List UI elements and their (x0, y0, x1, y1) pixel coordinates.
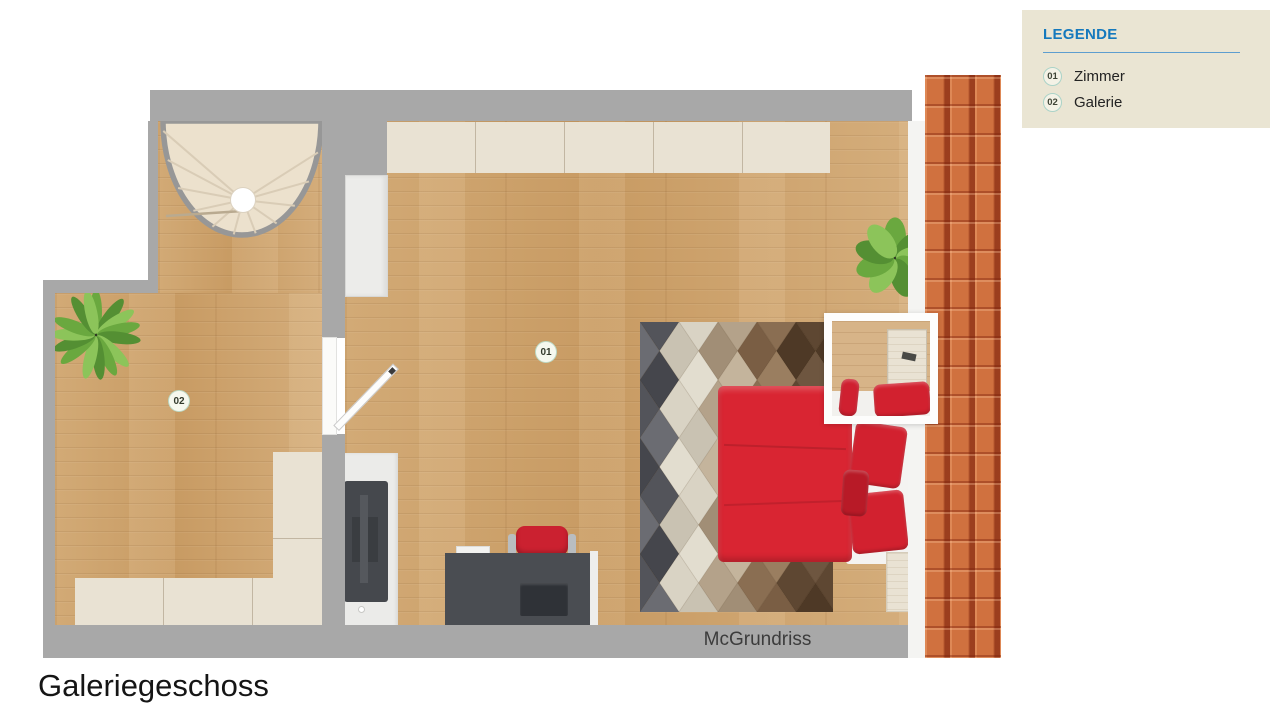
legend-title: LEGENDE (1043, 26, 1250, 43)
wardrobe (387, 122, 830, 173)
legend-item-galerie: 02 Galerie (1043, 91, 1250, 113)
detail-inset (824, 313, 938, 424)
inset-pillow-edge (838, 378, 860, 416)
door-jamb (322, 337, 337, 435)
office-chair (516, 526, 568, 556)
tall-cabinet (345, 175, 388, 297)
floor-plan-page: 01 02 McGrundriss Galeriegeschoss LEGEND… (0, 0, 1280, 720)
legend-badge-01: 01 (1043, 67, 1062, 86)
watermark: McGrundriss (650, 629, 865, 651)
bench-horizontal (75, 578, 273, 627)
legend-label-zimmer: Zimmer (1074, 68, 1125, 85)
desk (445, 553, 590, 625)
spiral-staircase (158, 121, 328, 251)
page-title: Galeriegeschoss (38, 668, 269, 704)
tv-detail (360, 495, 368, 583)
room-badge-01: 01 (535, 341, 557, 363)
plant-galerie (51, 290, 141, 380)
laptop (520, 583, 568, 616)
stair-dome (163, 121, 321, 235)
wall-divider-lower (322, 434, 345, 625)
legend-badge-02: 02 (1043, 93, 1062, 112)
wall-left-lower (43, 293, 55, 625)
wall-top (150, 90, 912, 121)
wall-left-step (43, 280, 158, 293)
detail-inset-image (832, 321, 930, 416)
wall-left-upper (148, 121, 158, 287)
inset-pillow (873, 381, 930, 416)
stair-column (231, 188, 256, 213)
wall-niche (345, 121, 387, 177)
legend-panel: LEGENDE 01 Zimmer 02 Galerie (1022, 10, 1270, 128)
tv-detail (368, 517, 378, 562)
desk-side-panel (590, 551, 598, 625)
wall-divider-upper (322, 121, 345, 338)
tv-knob (358, 606, 365, 613)
bench-vertical (273, 452, 322, 627)
room-badge-02: 02 (168, 390, 190, 412)
legend-label-galerie: Galerie (1074, 94, 1122, 111)
tv-detail (352, 517, 360, 562)
legend-divider (1043, 52, 1240, 53)
legend-item-zimmer: 01 Zimmer (1043, 65, 1250, 87)
nightstand (886, 552, 910, 612)
bed-pillow-small (840, 469, 869, 517)
